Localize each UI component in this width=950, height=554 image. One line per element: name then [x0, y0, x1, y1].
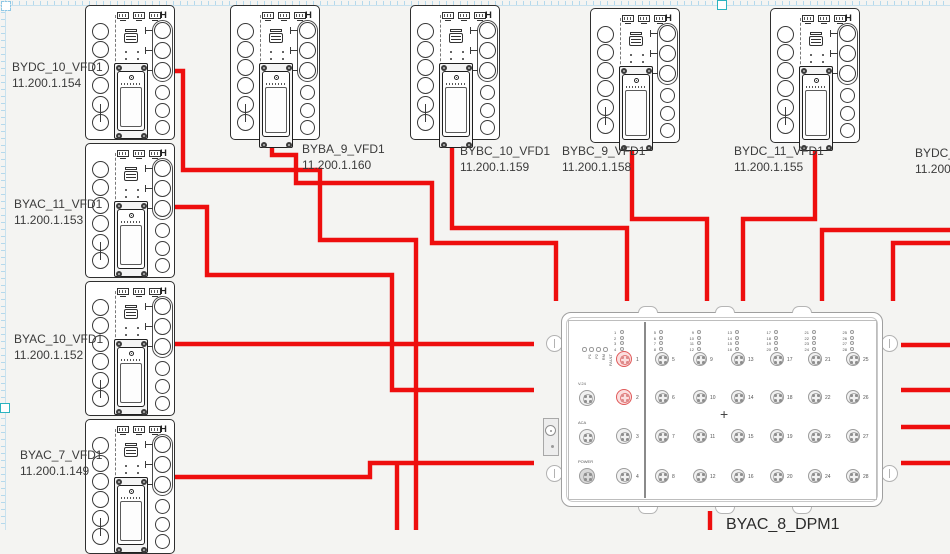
screw — [116, 547, 122, 553]
device-name: BYDC_12 — [915, 145, 950, 161]
device-name: BYBC_10_VFD1 — [460, 143, 550, 159]
device-ip: 11.200.1 — [915, 161, 950, 177]
device-label[interactable]: BYAC_7_VFD111.200.1.149 — [20, 447, 102, 479]
device-ip: 11.200.1.159 — [460, 159, 550, 175]
dpm-label[interactable]: BYAC_8_DPM1 — [726, 516, 840, 534]
device-name: BYAC_11_VFD1 — [14, 196, 102, 212]
device-ip: 11.200.1.152 — [14, 347, 103, 363]
device-label[interactable]: BYAC_10_VFD111.200.1.152 — [14, 331, 103, 363]
device-name: BYAC_7_VFD1 — [20, 447, 102, 463]
device-label[interactable]: BYBC_9_VFD111.200.1.158 — [562, 143, 645, 175]
device-ip: 11.200.1.155 — [734, 159, 824, 175]
device-label[interactable]: BYDC_10_VFD111.200.1.154 — [12, 59, 103, 91]
device-ip: 11.200.1.154 — [12, 75, 103, 91]
diagram-page: { "canvas": { "background": "#f4f4f2", "… — [0, 0, 950, 530]
device-label[interactable]: BYBC_10_VFD111.200.1.159 — [460, 143, 550, 175]
device-ip: 11.200.1.149 — [20, 463, 102, 479]
selection-handle-top[interactable] — [717, 0, 727, 10]
label-layer: BYDC_10_VFD111.200.1.154BYAC_11_VFD111.2… — [0, 0, 950, 530]
device-name: BYBC_9_VFD1 — [562, 143, 645, 159]
device-ip: 11.200.1.160 — [302, 157, 385, 173]
device-name: BYAC_10_VFD1 — [14, 331, 103, 347]
device-label[interactable]: BYDC_1211.200.1 — [915, 145, 950, 177]
device-label[interactable]: BYAC_11_VFD111.200.1.153 — [14, 196, 102, 228]
connector-circle — [155, 534, 170, 549]
device-ip: 11.200.1.153 — [14, 212, 102, 228]
selection-handle-left[interactable] — [0, 403, 10, 413]
screw — [141, 547, 147, 553]
device-name: BYDC_10_VFD1 — [12, 59, 103, 75]
device-ip: 11.200.1.158 — [562, 159, 645, 175]
device-name: BYDC_11_VFD1 — [734, 143, 824, 159]
device-label[interactable]: BYBA_9_VFD111.200.1.160 — [302, 141, 385, 173]
device-label[interactable]: BYDC_11_VFD111.200.1.155 — [734, 143, 824, 175]
device-name: BYBA_9_VFD1 — [302, 141, 385, 157]
